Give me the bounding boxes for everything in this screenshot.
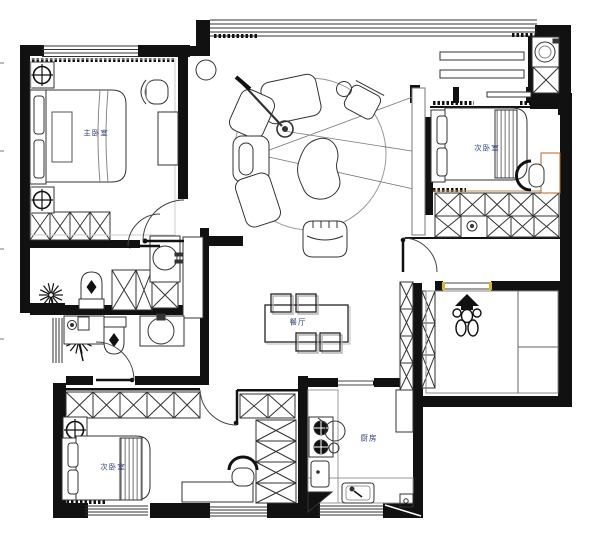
fridge xyxy=(396,390,413,432)
toilet xyxy=(79,272,104,309)
shelf-bar xyxy=(440,70,524,78)
wardrobe-side-panel xyxy=(412,88,425,235)
entry-furniture xyxy=(426,291,558,393)
room-label-dining: 餐厅 xyxy=(290,317,307,328)
room-outline xyxy=(426,291,558,393)
column-circle xyxy=(196,60,216,80)
wash-basin xyxy=(140,314,184,346)
door-frame-marker xyxy=(489,282,492,290)
washing-machine xyxy=(532,37,559,67)
floor-plan: 主卧室 次卧室 次卧室 餐厅 厨房 xyxy=(0,0,600,545)
living-room-furniture xyxy=(227,73,418,257)
door-frame-marker xyxy=(442,282,445,290)
dining-furniture xyxy=(265,294,350,353)
shelf-bar xyxy=(440,52,524,60)
bedroom-left-furniture xyxy=(62,436,257,502)
laundry-counter xyxy=(64,316,104,344)
kitchen-sink xyxy=(342,483,374,503)
kitchen-furniture xyxy=(308,390,413,512)
dresser xyxy=(158,112,178,165)
gas-stove xyxy=(309,417,345,457)
room-label-bedroom-right: 次卧室 xyxy=(474,143,500,154)
room-label-bedroom-left: 次卧室 xyxy=(100,462,126,473)
side-chair xyxy=(342,80,384,121)
door-bedroom-left xyxy=(200,390,238,425)
dressing-stool xyxy=(141,80,168,104)
master-bedroom-furniture xyxy=(30,59,216,235)
door-bedroom-right xyxy=(401,238,437,272)
desk-chair xyxy=(229,457,257,486)
toilet xyxy=(102,317,126,354)
double-bed xyxy=(30,90,126,184)
margin-ticks xyxy=(0,62,4,340)
room-label-master-bedroom: 主卧室 xyxy=(83,128,109,139)
wash-basin-cabinet xyxy=(150,236,183,282)
floor-plan-svg xyxy=(0,0,600,545)
tub-armchair xyxy=(303,221,347,257)
room-label-kitchen: 厨房 xyxy=(361,433,378,444)
tall-cabinet xyxy=(183,237,203,318)
cutting-board xyxy=(311,461,329,487)
shelf-bar xyxy=(487,92,531,97)
dining-table xyxy=(265,305,348,342)
organic-coffee-table xyxy=(298,138,340,199)
statue-figurine xyxy=(453,294,481,336)
